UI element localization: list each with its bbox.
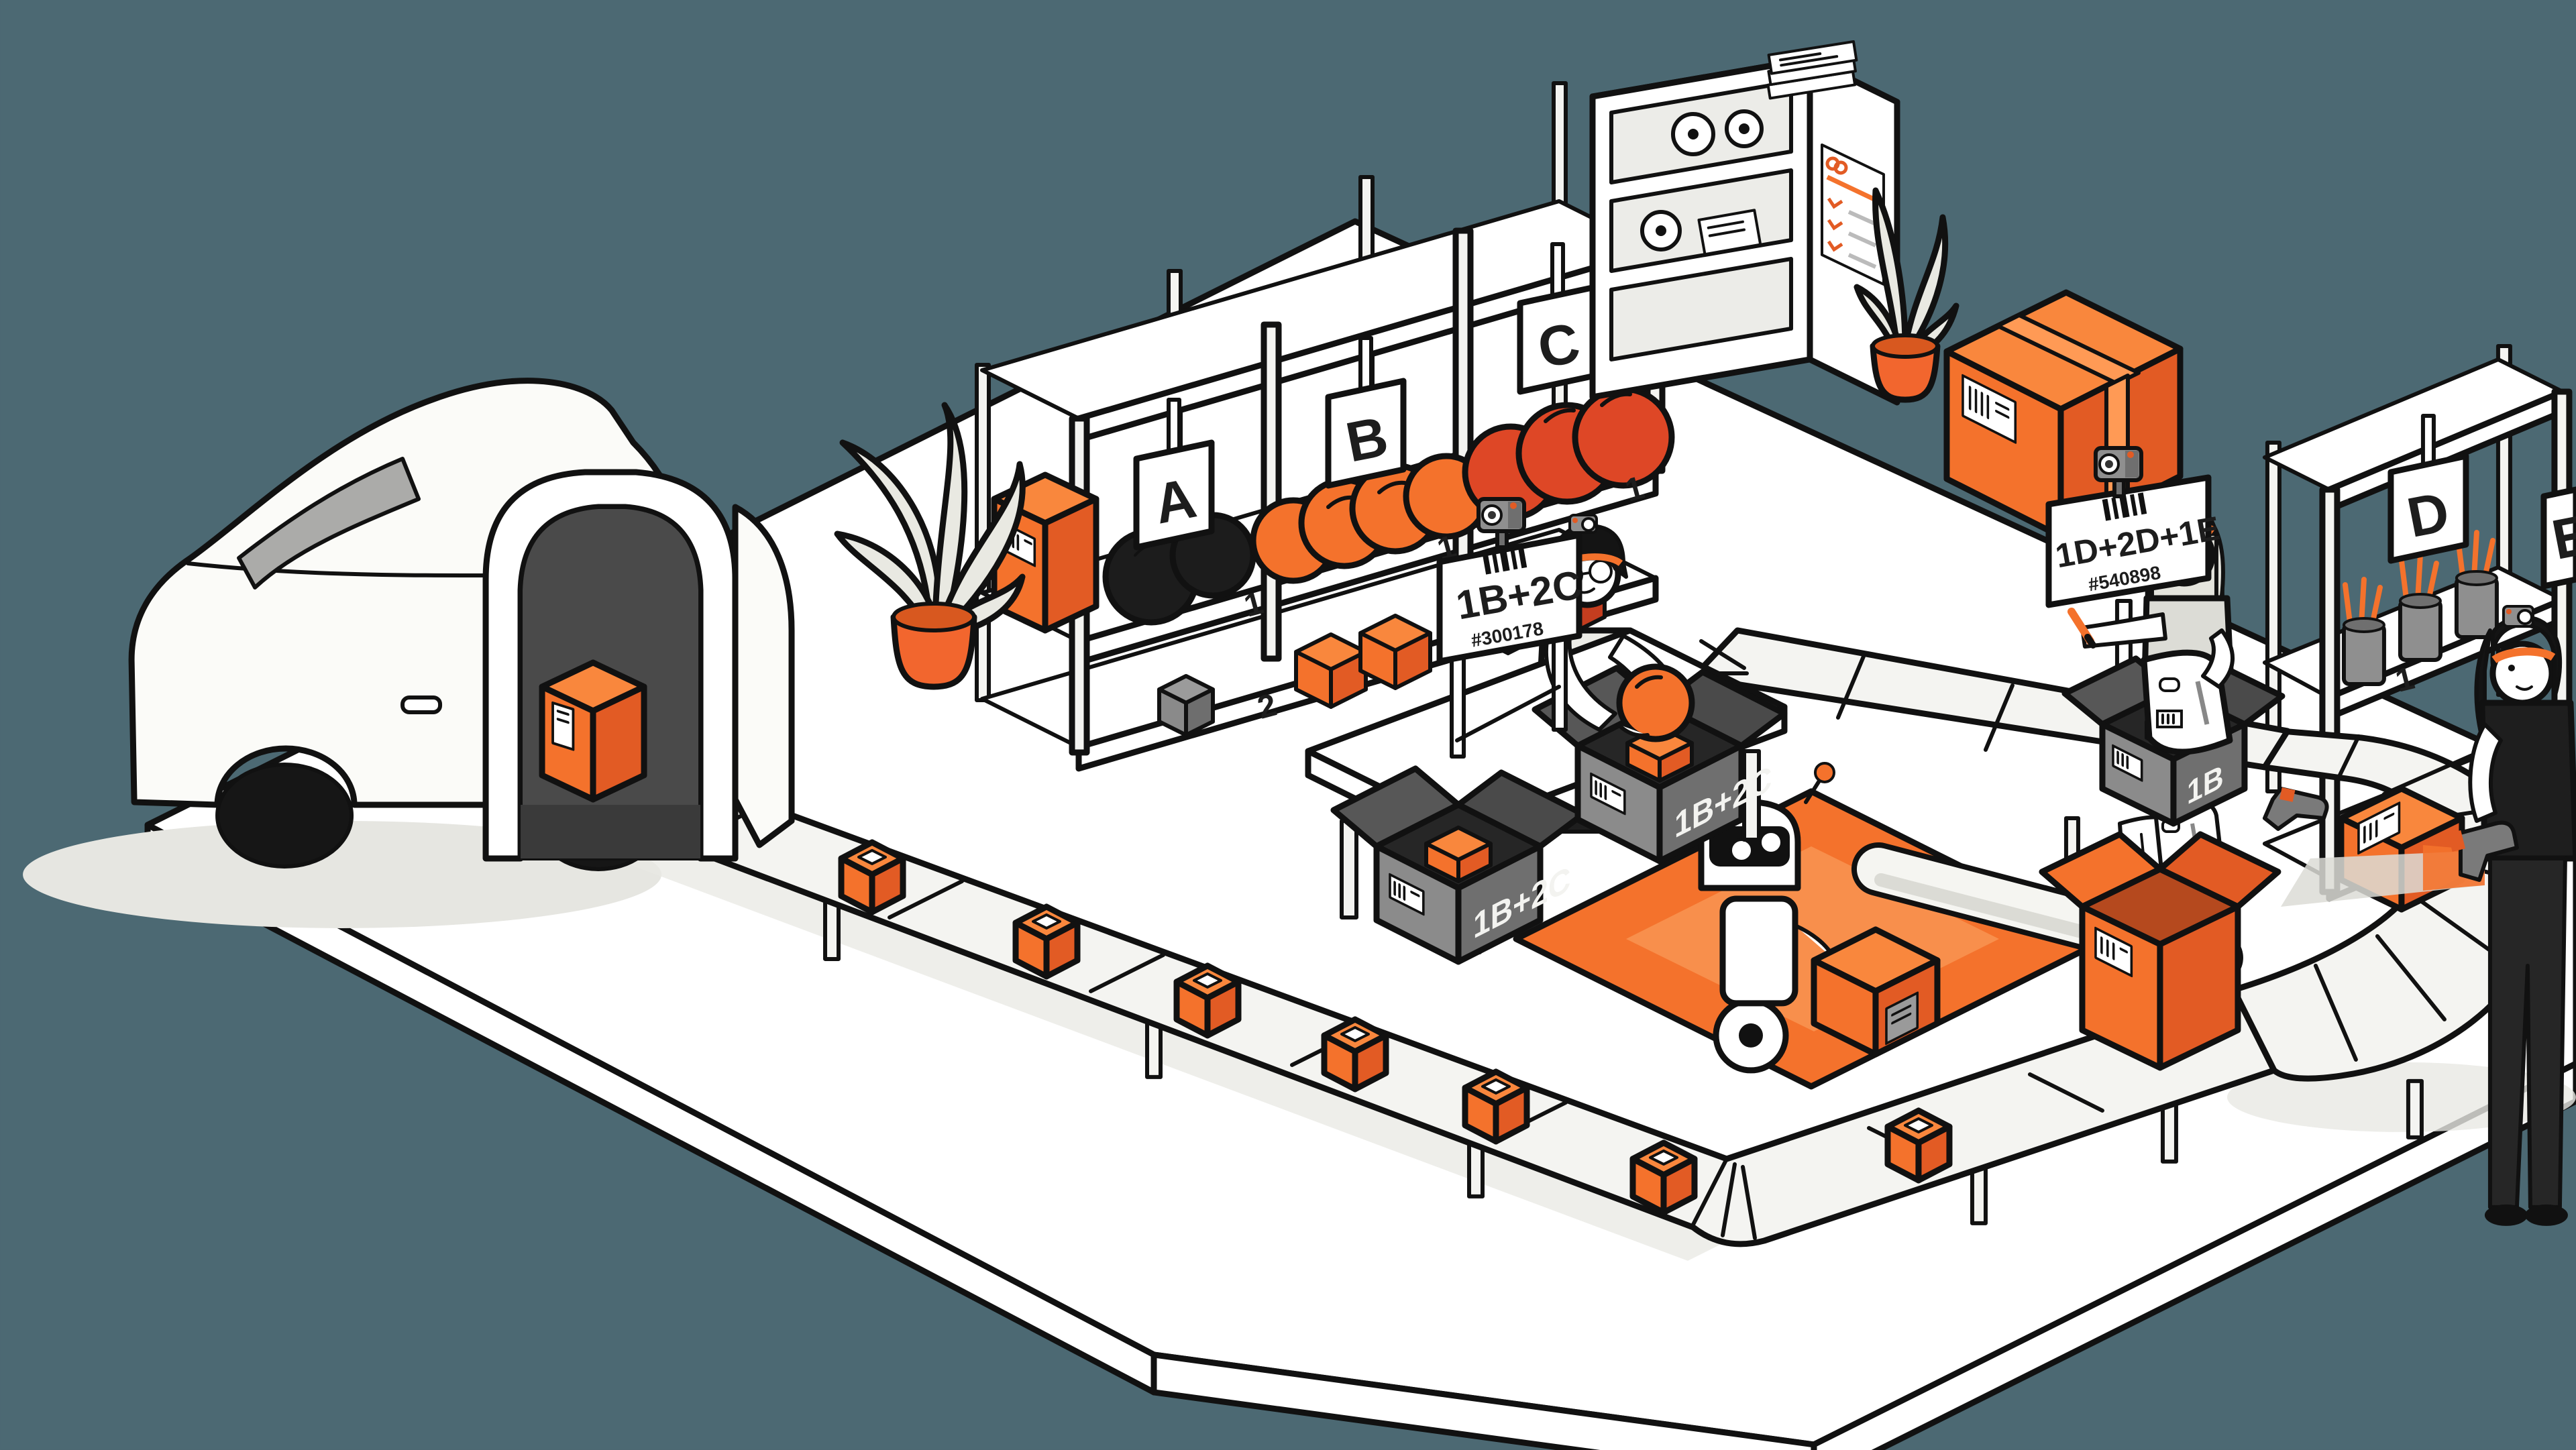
parcel <box>1465 1072 1527 1141</box>
parcel <box>1888 1111 1949 1180</box>
parcel <box>1633 1143 1695 1213</box>
parcel <box>1177 966 1238 1036</box>
parcel <box>841 842 903 912</box>
parcel <box>1016 907 1077 977</box>
head-camera-icon <box>1570 515 1597 533</box>
van-parcel <box>542 663 644 799</box>
rack-a-gray-box <box>1159 676 1213 735</box>
robot-parcel <box>1814 930 1937 1054</box>
rack-sign-e: E <box>2544 490 2576 586</box>
parcel <box>1324 1019 1386 1089</box>
supply-cabinet <box>1593 42 1897 402</box>
warehouse-illustration: 1 2 1 2 1 A B C <box>0 0 2576 1450</box>
van-wheel <box>217 765 352 867</box>
van-cargo-opening <box>486 472 792 858</box>
head-camera-icon <box>2504 606 2533 626</box>
van-handle <box>402 698 440 712</box>
